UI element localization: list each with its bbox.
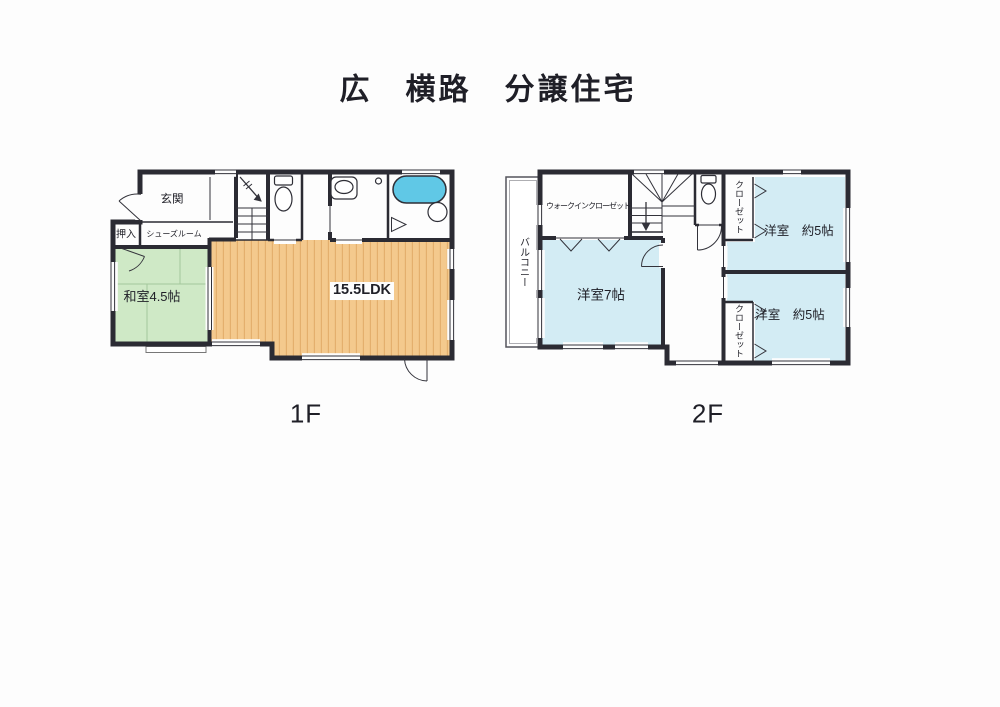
room-label-closet-top: クローゼット — [733, 180, 743, 234]
room-label-genkan: 玄関 — [161, 194, 184, 207]
room-label-closet-bottom: クローゼット — [733, 304, 743, 358]
room-label-shoes-room: シューズルーム — [146, 231, 201, 240]
room-label-balcony: バルコニー — [518, 237, 529, 287]
sink-icon-1f — [331, 177, 382, 199]
floor-2f-plan — [506, 167, 853, 368]
room-label-yoshitsu5-top: 洋室 約5帖 — [764, 225, 833, 239]
room-label-wic: ウォークインクローゼット — [546, 203, 630, 212]
room-label-yoshitsu5-bottom: 洋室 約5帖 — [755, 309, 824, 323]
ldk-backdoor-arc — [405, 359, 428, 381]
toilet-icon-1f — [275, 176, 293, 211]
toilet-door-arc-2f — [698, 226, 722, 250]
floor-2f-label: 2F — [692, 400, 724, 429]
floor-1f-label: 1F — [290, 400, 322, 429]
plan-title: 広 横路 分譲住宅 — [340, 74, 637, 107]
stairs-2f — [630, 174, 695, 232]
toilet-icon-2f — [701, 176, 716, 205]
room-label-ldk: 15.5LDK — [330, 282, 394, 300]
floorplan-page: 広 横路 分譲住宅 玄関 押入 シューズルーム 和室4.5帖 15.5LDK 1… — [0, 0, 1000, 707]
bathtub-icon — [392, 176, 448, 232]
washitsu-veranda — [146, 347, 206, 353]
room-label-washitsu: 和室4.5帖 — [123, 290, 180, 304]
stairs-1f — [236, 177, 268, 240]
room-label-yoshitsu7: 洋室7帖 — [577, 289, 625, 304]
room-label-oshiire: 押入 — [116, 230, 136, 241]
